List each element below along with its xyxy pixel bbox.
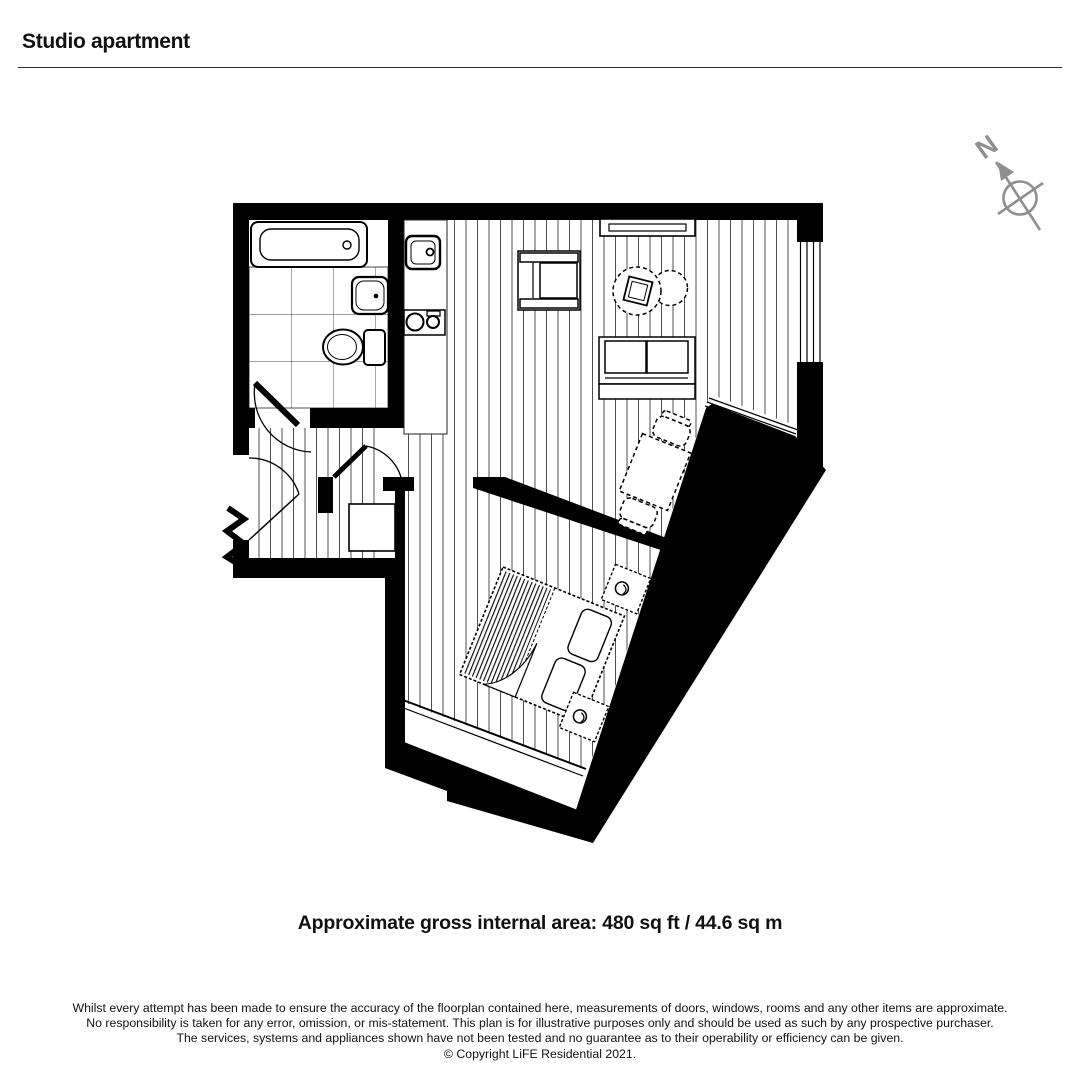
area-summary: Approximate gross internal area: 480 sq … [0,912,1080,935]
sofa [599,337,695,399]
disclaimer: Whilst every attempt has been made to en… [0,1001,1080,1062]
toilet [323,330,385,366]
tv-unit [600,219,695,236]
floorplan-page: Studio apartment [0,0,1080,1080]
disclaimer-line: Whilst every attempt has been made to en… [0,1001,1080,1016]
compass-north-label: N [970,129,1003,165]
armchair [518,251,580,310]
bathtub [251,222,367,267]
kitchen-hob [404,310,445,335]
kitchen-sink [406,236,440,269]
basin [352,277,388,314]
right-wall-window [797,242,823,362]
disclaimer-line: The services, systems and appliances sho… [0,1031,1080,1046]
closet-unit [349,504,395,551]
disclaimer-line: No responsibility is taken for any error… [0,1016,1080,1031]
compass: N [970,129,1043,230]
copyright: © Copyright LiFE Residential 2021. [0,1047,1080,1062]
